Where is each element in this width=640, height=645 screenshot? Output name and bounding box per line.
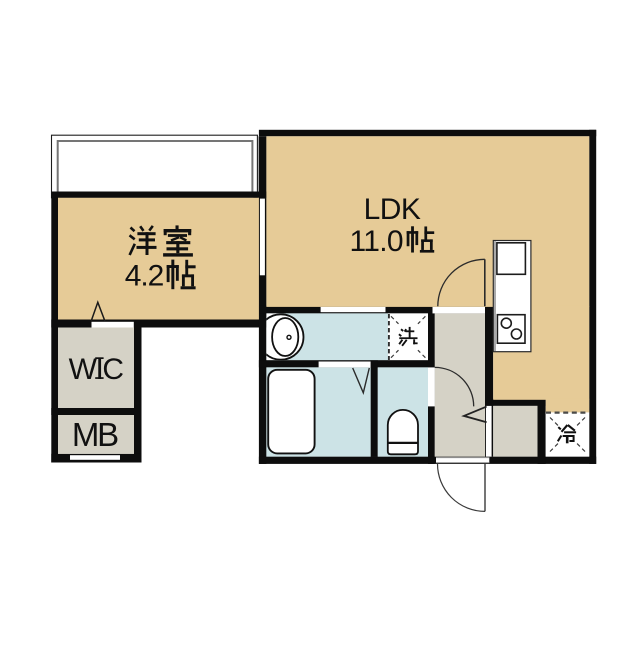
svg-text:MB: MB: [72, 416, 118, 453]
svg-text:11.0: 11.0: [350, 225, 403, 258]
svg-text:4.2: 4.2: [125, 259, 164, 292]
svg-text:LDK: LDK: [364, 193, 421, 226]
